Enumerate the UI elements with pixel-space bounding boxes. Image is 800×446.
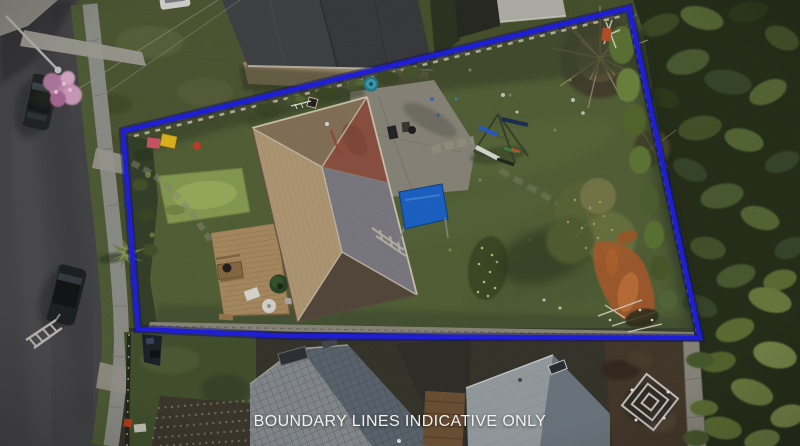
- caption: BOUNDARY LINES INDICATIVE ONLY: [0, 413, 800, 431]
- small-white-dot: [397, 439, 401, 443]
- aerial-photo-svg: [0, 0, 800, 446]
- aerial-photo: BOUNDARY LINES INDICATIVE ONLY: [0, 0, 800, 446]
